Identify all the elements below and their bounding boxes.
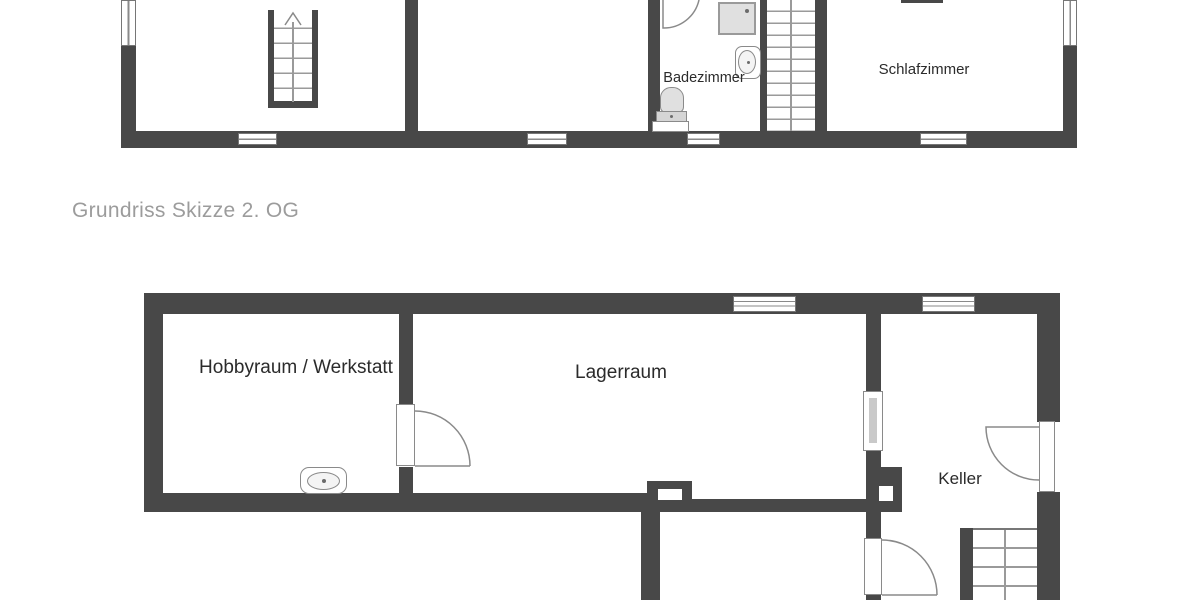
toilet-button-dot bbox=[670, 115, 673, 118]
toilet-bowl bbox=[660, 87, 684, 113]
toilet-base bbox=[652, 121, 689, 132]
wall-extension-left bbox=[641, 512, 660, 600]
stair-midline bbox=[292, 22, 294, 102]
room-label-hobbyraum: Hobbyraum / Werkstatt bbox=[146, 357, 446, 379]
window bbox=[238, 133, 277, 145]
wall-right-lower bbox=[1037, 492, 1060, 600]
window bbox=[121, 0, 136, 46]
wall-bottom-left bbox=[144, 493, 656, 512]
door-swing-icon bbox=[659, 0, 705, 34]
wall-divider-hobby-lager-bottom bbox=[399, 467, 413, 493]
wall-bathroom-right bbox=[760, 0, 767, 131]
wall-extension-right-top bbox=[866, 512, 881, 538]
stair-rail bbox=[268, 101, 318, 108]
wall-right-upper bbox=[1037, 293, 1060, 422]
window bbox=[922, 296, 975, 312]
staircase-icon bbox=[767, 0, 815, 131]
floorplan-canvas: Badezimmer Schlafzimmer Grundriss Skizze… bbox=[0, 0, 1200, 600]
chimney-flue bbox=[879, 486, 893, 501]
door-swing-icon bbox=[394, 402, 478, 470]
room-label-schlafzimmer: Schlafzimmer bbox=[850, 61, 998, 78]
washbasin-icon bbox=[300, 467, 347, 494]
washbasin-drain-dot bbox=[322, 479, 326, 483]
wall-left bbox=[144, 293, 163, 512]
window bbox=[687, 133, 720, 145]
room-label-badezimmer: Badezimmer bbox=[630, 70, 778, 86]
room-label-lagerraum: Lagerraum bbox=[521, 362, 721, 384]
plan-caption: Grundriss Skizze 2. OG bbox=[72, 199, 299, 223]
window bbox=[733, 296, 796, 312]
window bbox=[1063, 0, 1077, 46]
wall-stairwell-right bbox=[815, 0, 827, 131]
sliding-door-panel bbox=[869, 398, 877, 443]
wall-divider-lager-keller-top bbox=[866, 314, 881, 392]
staircase-icon bbox=[268, 0, 318, 108]
room-label-keller: Keller bbox=[910, 469, 1010, 489]
window bbox=[527, 133, 567, 145]
wall-divider-lager-keller-mid bbox=[866, 450, 881, 467]
staircase-icon bbox=[973, 528, 1037, 600]
stair-rail bbox=[960, 528, 973, 600]
stair-midline bbox=[1004, 530, 1006, 600]
stair-midline bbox=[790, 0, 792, 131]
lower-floorplan: Hobbyraum / Werkstatt Lagerraum Keller bbox=[0, 280, 1200, 600]
chimney-flue bbox=[658, 489, 682, 500]
window bbox=[920, 133, 967, 145]
wall-room-divider bbox=[405, 0, 418, 131]
wall-top-window-remnant bbox=[901, 0, 943, 3]
sliding-door bbox=[863, 391, 883, 451]
shower-icon bbox=[718, 2, 756, 35]
shower-head-dot bbox=[745, 9, 749, 13]
stair-rail bbox=[312, 10, 318, 108]
toilet-icon bbox=[652, 86, 689, 132]
stair-direction-arrow-icon bbox=[283, 11, 303, 27]
washbasin-drain-dot bbox=[747, 61, 750, 64]
door-swing-icon bbox=[879, 536, 941, 598]
